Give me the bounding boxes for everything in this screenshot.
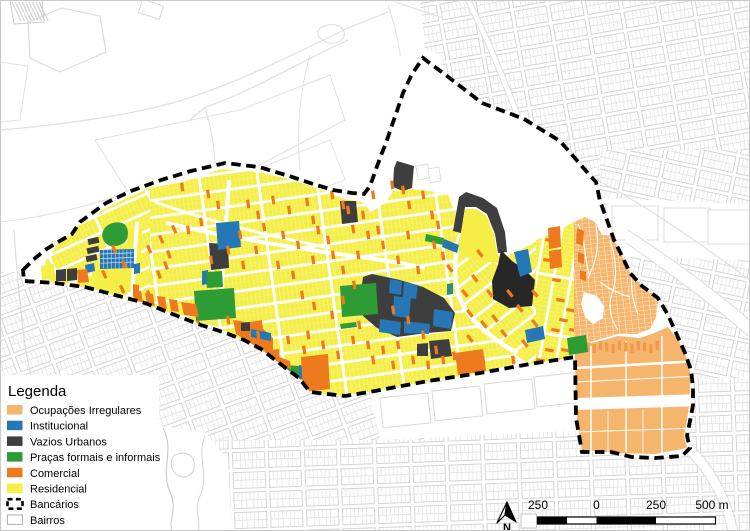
svg-text:Residencial: Residencial [30,484,87,496]
svg-text:500 m: 500 m [695,498,728,512]
svg-text:Praças formais e informais: Praças formais e informais [30,452,161,464]
svg-text:250: 250 [528,498,548,512]
svg-text:Ocupações Irregulares: Ocupações Irregulares [30,405,142,417]
svg-text:N: N [503,522,511,531]
svg-text:Comercial: Comercial [30,468,80,480]
svg-text:0: 0 [593,498,600,512]
svg-text:Bairros: Bairros [30,515,65,527]
svg-text:Institucional: Institucional [30,421,88,433]
svg-text:Bancários: Bancários [30,499,79,511]
svg-text:250: 250 [646,498,666,512]
svg-text:Vazios Urbanos: Vazios Urbanos [30,436,107,448]
svg-text:Legenda: Legenda [8,383,67,400]
